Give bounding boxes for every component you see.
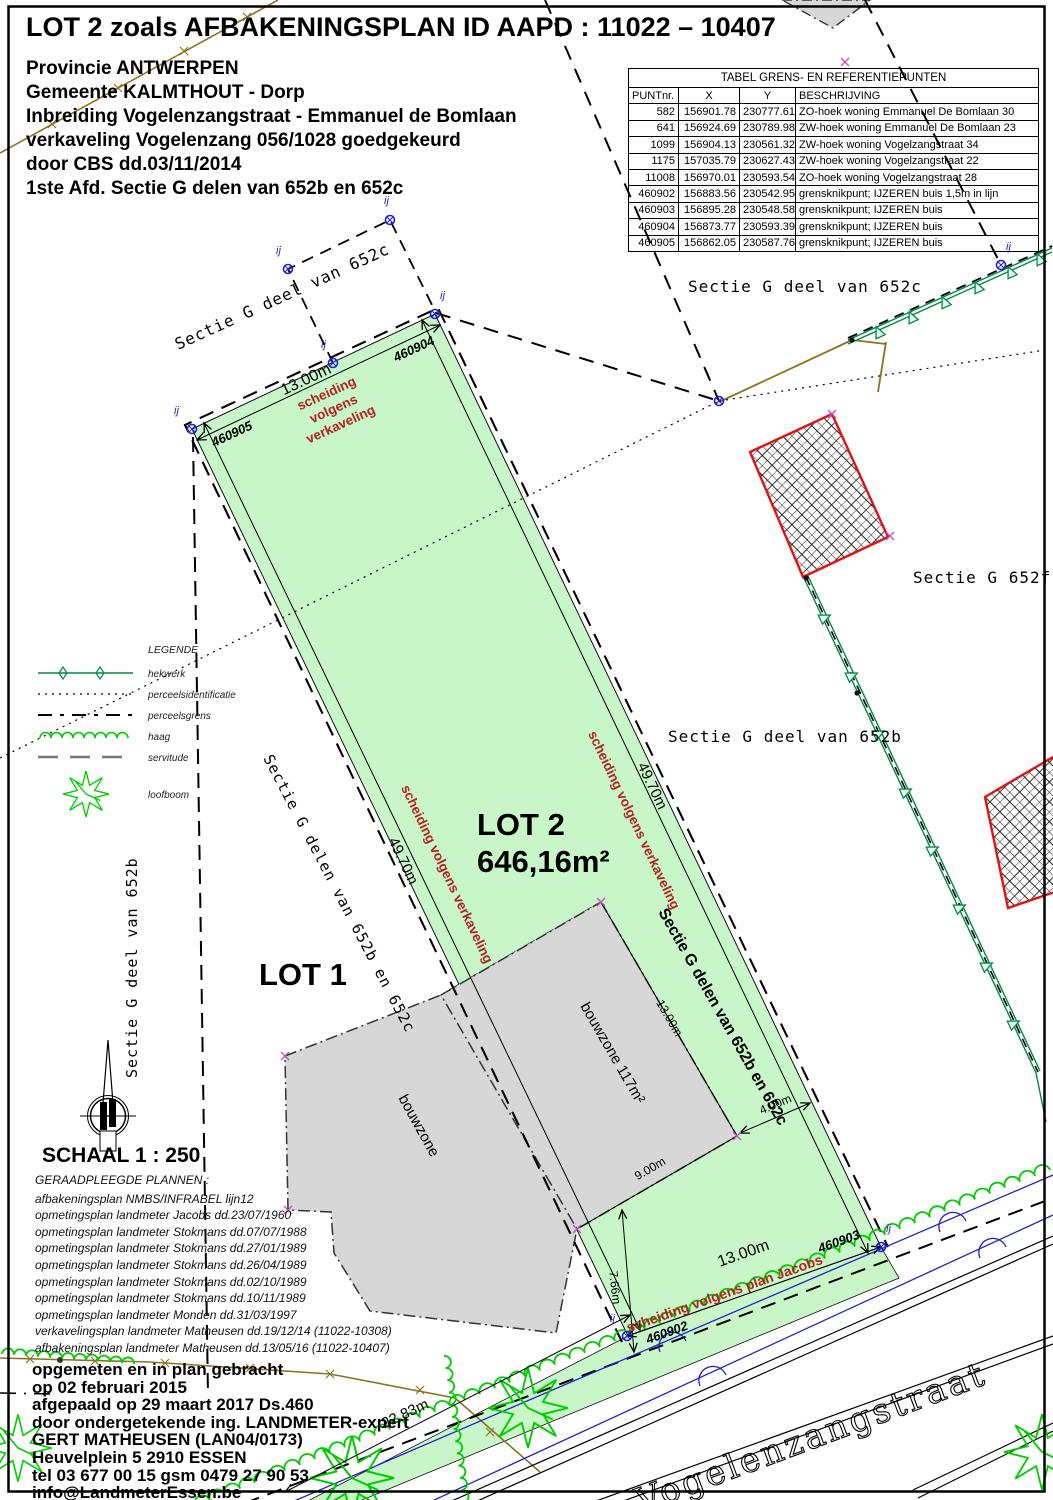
cell-x: 157035.79 — [679, 153, 740, 169]
title-line-verkaveling: verkaveling Vogelenzang 056/1028 goedgek… — [26, 129, 626, 153]
col-header-y: Y — [740, 88, 796, 104]
cell-puntnr: 460902 — [629, 186, 679, 202]
cell-y: 230593.54 — [740, 169, 796, 185]
title-line-inbreiding: Inbreiding Vogelenzangstraat - Emmanuel … — [26, 105, 626, 129]
plan-line: opmetingsplan landmeter Monden dd.31/03/… — [35, 1307, 392, 1324]
legend-item-perceelsidentificatie: perceelsidentificatie — [38, 685, 318, 706]
cell-y: 230542.95 — [740, 186, 796, 202]
ij-label: ij — [276, 245, 281, 257]
consulted-plans-title: GERAADPLEEGDE PLANNEN : — [35, 1172, 392, 1189]
section-label-mid-right: Sectie G deel van 652b — [668, 727, 902, 746]
legend-label: haag — [148, 732, 170, 743]
section-label-652f: Sectie G 652f — [913, 568, 1051, 587]
plan-line: opmetingsplan landmeter Stokmans dd.26/0… — [35, 1257, 392, 1274]
cell-x: 156883.56 — [679, 186, 740, 202]
dotted-line-icon — [38, 686, 133, 705]
plan-line: opmetingsplan landmeter Stokmans dd.02/1… — [35, 1274, 392, 1291]
cell-desc: grensknikpunt; IJZEREN buis — [796, 235, 1039, 251]
title-line-cbs: door CBS dd.03/11/2014 — [26, 153, 626, 177]
dashed-line-icon — [38, 707, 133, 726]
ij-label: ij — [610, 1313, 615, 1325]
survey-plan-page: ij ij ij ij ij ij ij ij Sectie G deel va… — [0, 0, 1053, 1500]
legend: LEGENDE hekwerk perceelsidentificatie pe… — [38, 644, 318, 821]
section-label-left-top: Sectie G deel van 652c — [172, 239, 393, 353]
plan-line: opmetingsplan landmeter Stokmans dd.07/0… — [35, 1224, 392, 1241]
cell-puntnr: 582 — [629, 104, 679, 120]
title-line-province: Provincie ANTWERPEN — [26, 57, 626, 81]
legend-label: perceelsidentificatie — [148, 690, 236, 701]
table-header-row: PUNTnr. X Y BESCHRIJVING — [629, 88, 1039, 104]
cell-x: 156924.69 — [679, 120, 740, 136]
hatched-building-2 — [985, 750, 1053, 908]
title-block: LOT 2 zoals AFBAKENINGSPLAN ID AAPD : 11… — [26, 12, 626, 201]
dim-front-offset: 7.66m — [606, 1270, 623, 1305]
cell-desc: ZW-hoek woning Emmanuel De Bomlaan 23 — [796, 120, 1039, 136]
hatched-building-1 — [750, 414, 888, 577]
ij-label: ij — [321, 339, 326, 351]
plan-line: opmetingsplan landmeter Stokmans dd.27/0… — [35, 1240, 392, 1257]
section-label-right-top: Sectie G deel van 652c — [688, 277, 922, 296]
haag-wavy-line-icon — [38, 727, 133, 748]
legend-item-hekwerk: hekwerk — [38, 664, 318, 685]
cell-y: 230627.43 — [740, 153, 796, 169]
cell-y: 230548.58 — [740, 202, 796, 218]
legend-item-perceelsgrens: perceelsgrens — [38, 706, 318, 727]
surveyor-line-email: info@LandmeterEssen.be — [32, 1484, 409, 1500]
legend-item-loofboom: loofboom — [38, 769, 318, 821]
lot2-area-label: 646,16m² — [477, 844, 610, 879]
surveyor-line-phone: tel 03 677 00 15 gsm 0479 27 90 53 — [32, 1467, 409, 1485]
col-header-x: X — [679, 88, 740, 104]
cell-x: 156970.01 — [679, 169, 740, 185]
surveyor-block: opgemeten en in plan gebracht op 02 febr… — [32, 1361, 409, 1500]
table-row: 460902 156883.56 230542.95 grensknikpunt… — [629, 186, 1039, 202]
title-line-gemeente: Gemeente KALMTHOUT - Dorp — [26, 81, 626, 105]
table-row: 460904 156873.77 230593.39 grensknikpunt… — [629, 219, 1039, 235]
table-title: TABEL GRENS- EN REFERENTIEPUNTEN — [629, 69, 1039, 88]
surveyor-line-measured: opgemeten en in plan gebracht — [32, 1361, 409, 1379]
col-header-beschrijving: BESCHRIJVING — [796, 88, 1039, 104]
cell-desc: ZO-hoek woning Emmanuel De Bomlaan 30 — [796, 104, 1039, 120]
table-row: 1099 156904.13 230561.32 ZW-hoek woning … — [629, 137, 1039, 153]
table-row: 11008 156970.01 230593.54 ZO-hoek woning… — [629, 169, 1039, 185]
plan-line: verkavelingsplan landmeter Matheusen dd.… — [35, 1323, 392, 1340]
surveyor-line-role: door ondergetekende ing. LANDMETER-exper… — [32, 1414, 409, 1432]
legend-label: perceelsgrens — [148, 711, 211, 722]
lot2-label: LOT 2 — [477, 807, 565, 842]
section-label-left-vertical: Sectie G deel van 652b — [123, 857, 141, 1078]
surveyor-line-date: op 02 februari 2015 — [32, 1379, 409, 1397]
cell-desc: grensknikpunt; IJZEREN buis — [796, 219, 1039, 235]
ij-label: ij — [174, 405, 179, 417]
cell-y: 230777.61 — [740, 104, 796, 120]
loofboom-tree-icon — [38, 768, 133, 823]
cell-puntnr: 460905 — [629, 235, 679, 251]
cell-x: 156873.77 — [679, 219, 740, 235]
servitude-line-icon — [38, 749, 133, 768]
table-row: 460905 156862.05 230587.76 grensknikpunt… — [629, 235, 1039, 251]
legend-title: LEGENDE — [148, 644, 318, 656]
cell-desc: ZW-hoek woning Vogelzangstraat 34 — [796, 137, 1039, 153]
cell-y: 230593.39 — [740, 219, 796, 235]
cell-y: 230587.76 — [740, 235, 796, 251]
cell-puntnr: 641 — [629, 120, 679, 136]
lot1-label: LOT 1 — [259, 957, 347, 992]
cell-puntnr: 460903 — [629, 202, 679, 218]
table-row: 582 156901.78 230777.61 ZO-hoek woning E… — [629, 104, 1039, 120]
cell-x: 156904.13 — [679, 137, 740, 153]
cell-desc: grensknikpunt; IJZEREN buis — [796, 202, 1039, 218]
cell-puntnr: 1099 — [629, 137, 679, 153]
ij-label: ij — [886, 1223, 891, 1235]
legend-label: hekwerk — [148, 669, 185, 680]
surveyor-line-address: Heuvelplein 5 2910 ESSEN — [32, 1449, 409, 1467]
plan-line: afbakeningsplan landmeter Matheusen dd.1… — [35, 1340, 392, 1357]
surveyor-line-name: GERT MATHEUSEN (LAN04/0173) — [32, 1431, 409, 1449]
legend-item-servitude: servitude — [38, 748, 318, 769]
plan-title: LOT 2 zoals AFBAKENINGSPLAN ID AAPD : 11… — [26, 12, 626, 43]
reference-table: TABEL GRENS- EN REFERENTIEPUNTEN PUNTnr.… — [628, 68, 1038, 252]
legend-label: servitude — [148, 753, 189, 764]
hekwerk-line-icon — [38, 665, 133, 684]
table-row: 1175 157035.79 230627.43 ZW-hoek woning … — [629, 153, 1039, 169]
legend-item-haag: haag — [38, 727, 318, 748]
plan-line: opmetingsplan landmeter Stokmans dd.10/1… — [35, 1290, 392, 1307]
cell-y: 230789.98 — [740, 120, 796, 136]
cell-puntnr: 1175 — [629, 153, 679, 169]
legend-label: loofboom — [148, 790, 189, 801]
scale-label: SCHAAL 1 : 250 — [42, 1144, 200, 1168]
cell-puntnr: 11008 — [629, 169, 679, 185]
cell-x: 156901.78 — [679, 104, 740, 120]
plan-line: afbakeningsplan NMBS/INFRABEL lijn12 — [35, 1191, 392, 1208]
cell-desc: ZO-hoek woning Vogelzangstraat 28 — [796, 169, 1039, 185]
col-header-puntnr: PUNTnr. — [629, 88, 679, 104]
cell-desc: ZW-hoek woning Vogelzangstraat 22 — [796, 153, 1039, 169]
title-line-sectie: 1ste Afd. Sectie G delen van 652b en 652… — [26, 177, 626, 201]
table-row: 641 156924.69 230789.98 ZW-hoek woning E… — [629, 120, 1039, 136]
surveyor-line-staked: afgepaald op 29 maart 2017 Ds.460 — [32, 1396, 409, 1414]
table-row: 460903 156895.28 230548.58 grensknikpunt… — [629, 202, 1039, 218]
plan-line: opmetingsplan landmeter Jacobs dd.23/07/… — [35, 1207, 392, 1224]
cell-y: 230561.32 — [740, 137, 796, 153]
consulted-plans-block: GERAADPLEEGDE PLANNEN : afbakeningsplan … — [35, 1172, 392, 1357]
ij-label: ij — [440, 290, 445, 302]
cell-x: 156862.05 — [679, 235, 740, 251]
cell-x: 156895.28 — [679, 202, 740, 218]
corner-building-gray — [782, 0, 870, 28]
cell-desc: grensknikpunt; IJZEREN buis 1,5m in lijn — [796, 186, 1039, 202]
cell-puntnr: 460904 — [629, 219, 679, 235]
